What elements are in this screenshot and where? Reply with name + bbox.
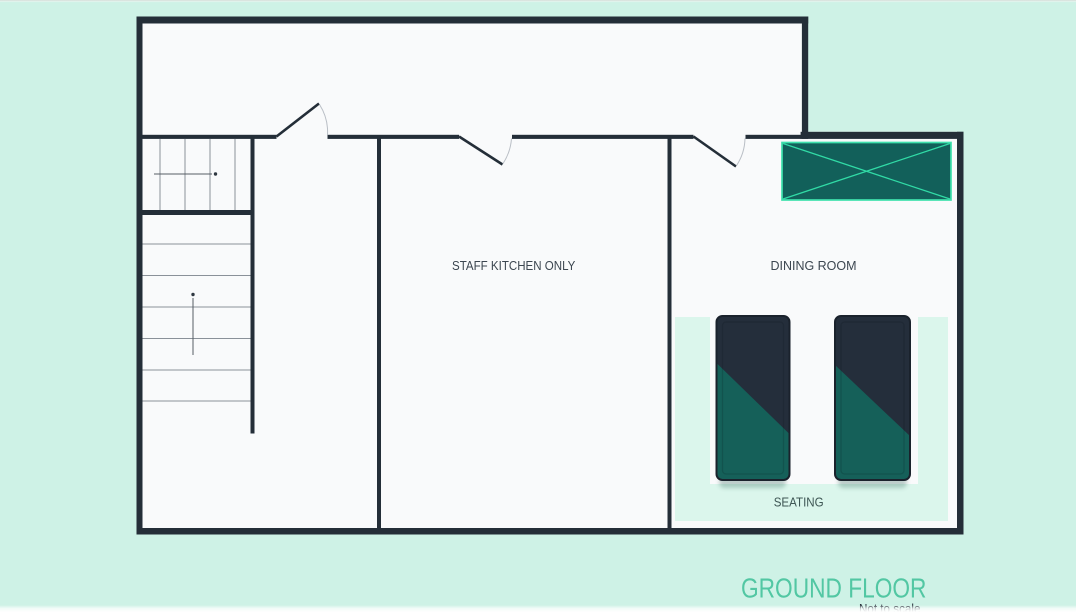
svg-text:SEATING: SEATING: [774, 495, 824, 510]
svg-text:STAFF KITCHEN ONLY: STAFF KITCHEN ONLY: [452, 258, 576, 273]
svg-text:GROUND FLOOR: GROUND FLOOR: [741, 573, 926, 604]
svg-text:DINING ROOM: DINING ROOM: [771, 258, 857, 273]
